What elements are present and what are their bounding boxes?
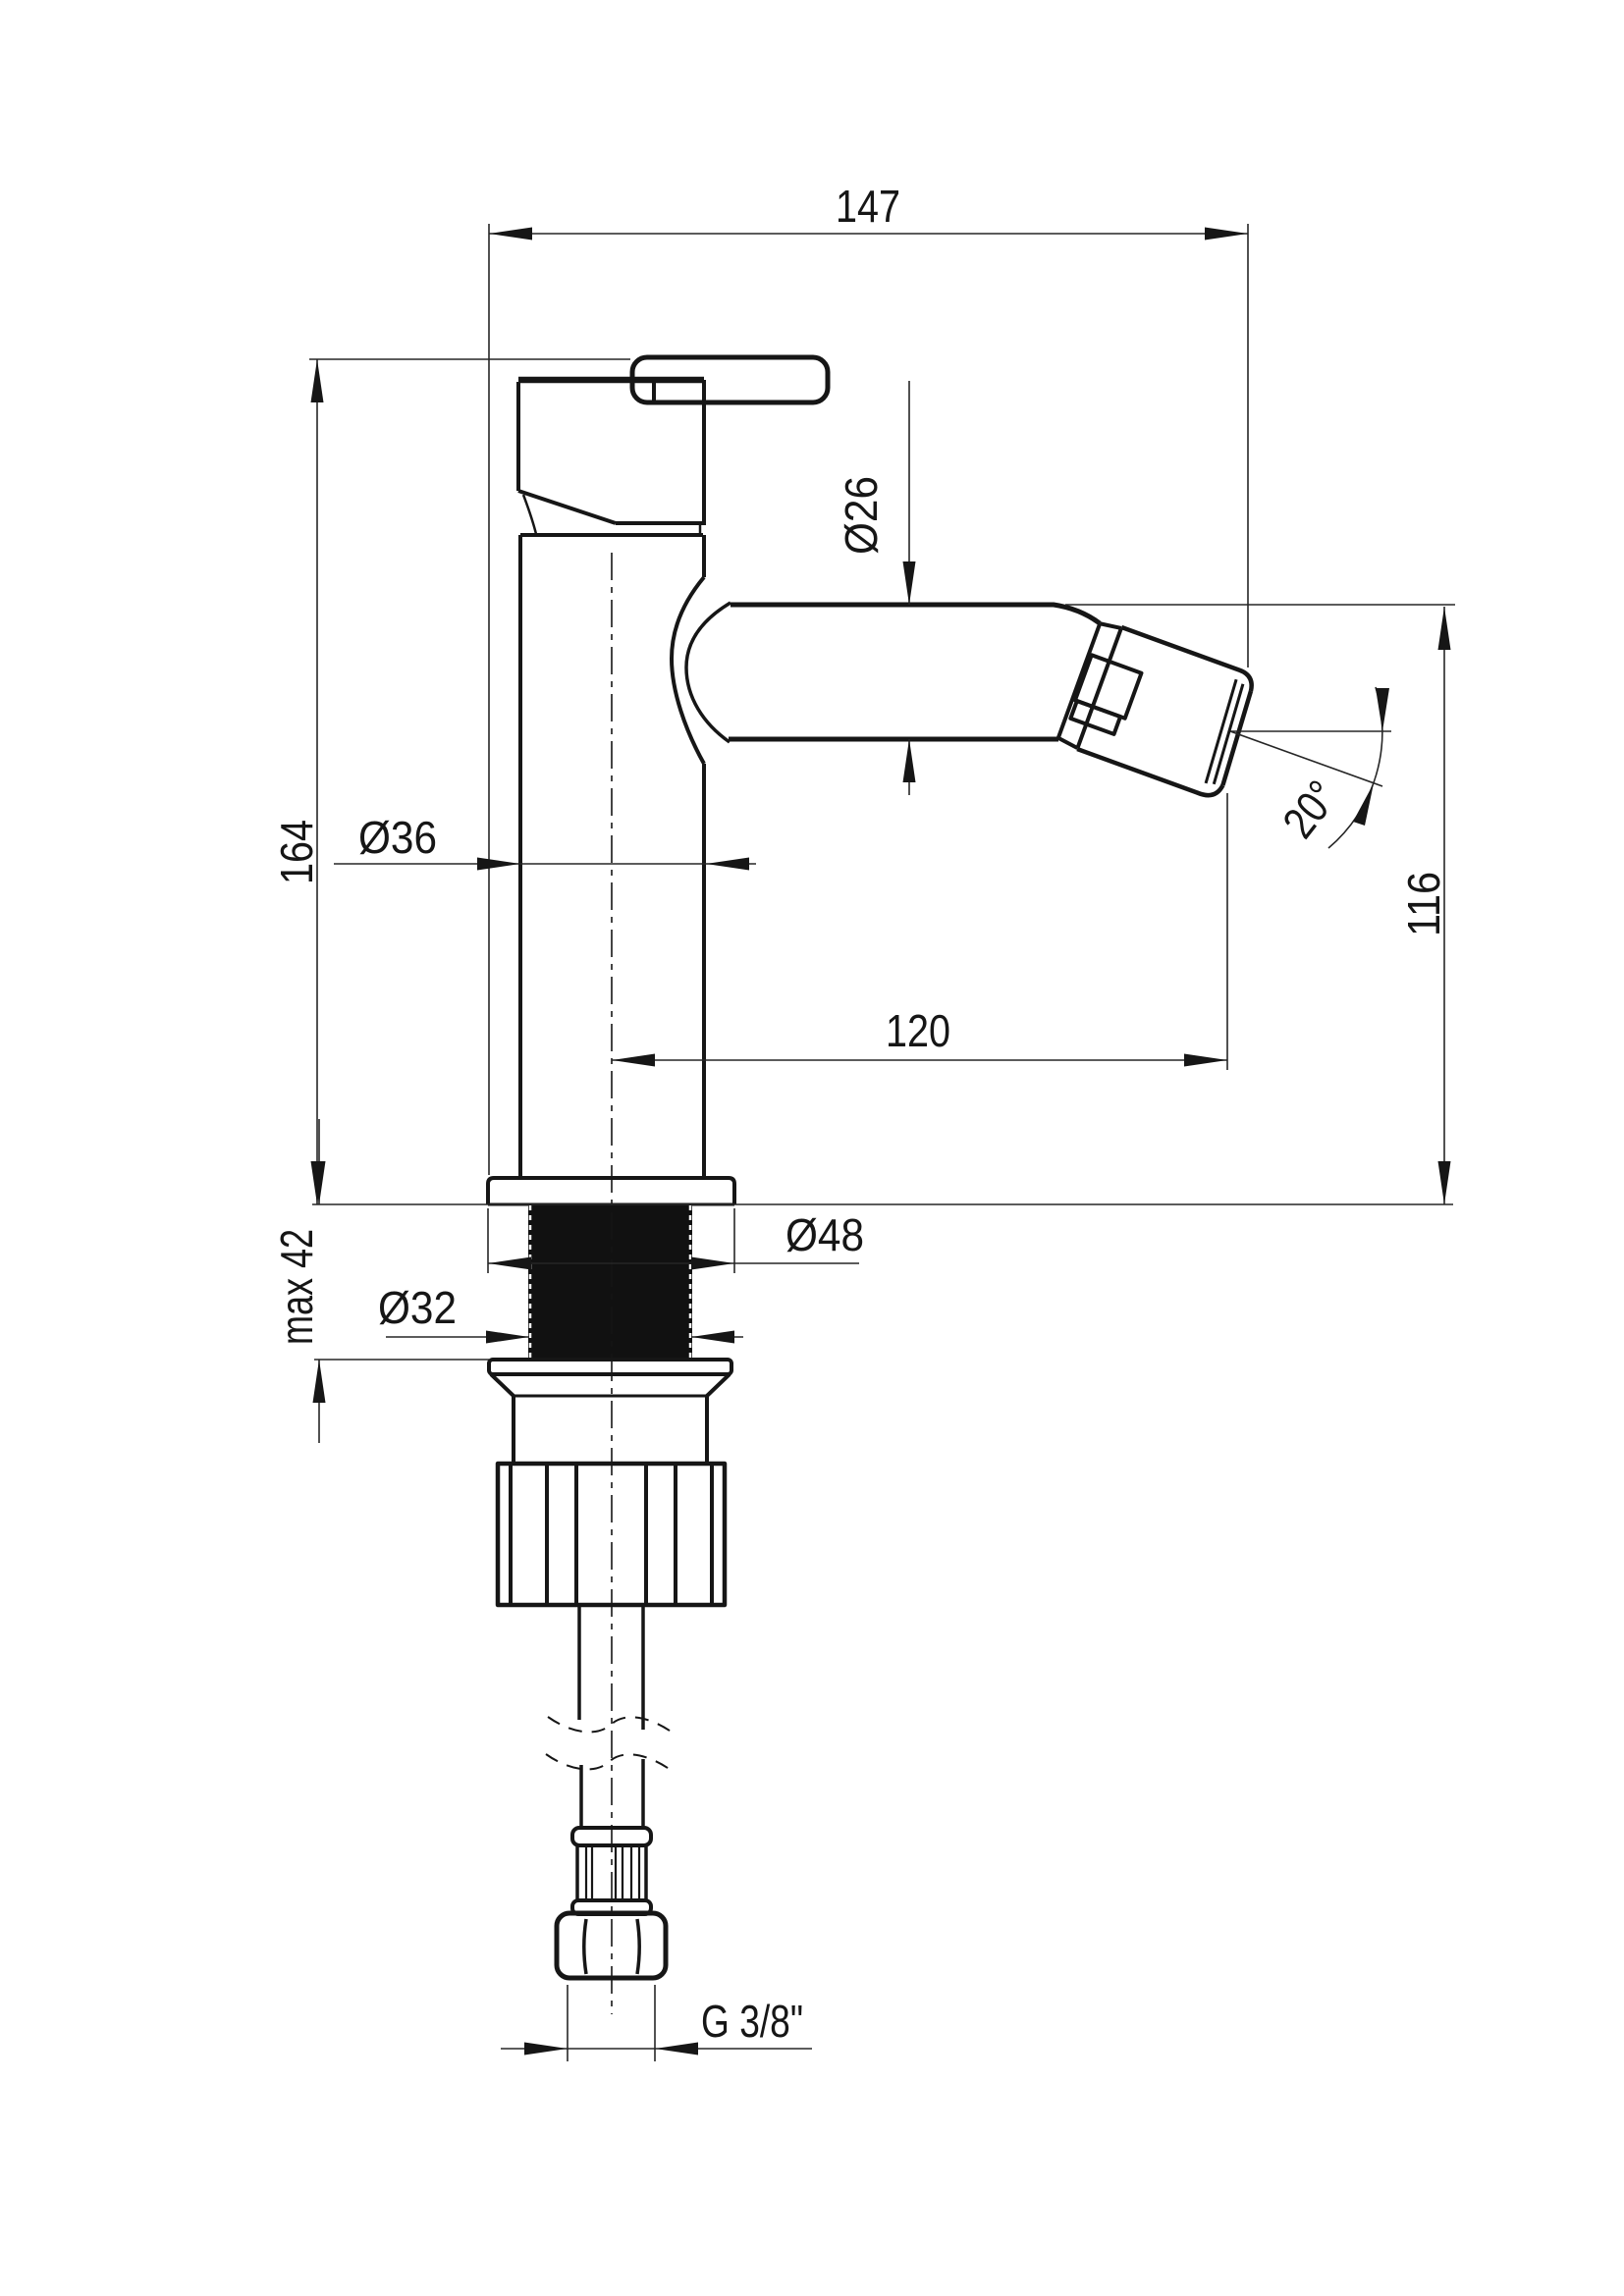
dimension-labels: 147 164 Ø26 Ø36 116 120 20° max 42 Ø48 Ø… (271, 181, 1449, 2047)
drawing-page: 147 164 Ø26 Ø36 116 120 20° max 42 Ø48 Ø… (0, 0, 1624, 2296)
label-flange-o48: Ø48 (785, 1209, 864, 1260)
body-column (520, 535, 731, 1178)
label-connection-g38: G 3/8" (701, 1996, 803, 2047)
label-spout-o26: Ø26 (836, 476, 887, 555)
label-max42: max 42 (271, 1229, 322, 1345)
label-reach-120: 120 (886, 1005, 950, 1056)
technical-drawing-canvas: 147 164 Ø26 Ø36 116 120 20° max 42 Ø48 Ø… (0, 0, 1624, 2296)
label-height-164: 164 (271, 820, 322, 884)
spout (729, 605, 1100, 739)
faucet-outline (488, 357, 1262, 2014)
label-shank-o32: Ø32 (378, 1282, 457, 1333)
dim-147 (489, 224, 1248, 1175)
label-body-o36: Ø36 (358, 812, 437, 863)
supply-tube (546, 1605, 673, 1829)
threaded-shank (528, 1205, 692, 1359)
aerator-nozzle (1056, 619, 1262, 800)
label-outlet-116: 116 (1398, 872, 1449, 936)
label-width-147: 147 (836, 181, 900, 232)
dim-max42 (314, 1119, 489, 1443)
dim-164 (309, 359, 630, 1204)
label-angle-20deg: 20° (1272, 771, 1348, 847)
dim-116 (1065, 605, 1455, 1204)
mounting-nut (489, 1360, 731, 1464)
